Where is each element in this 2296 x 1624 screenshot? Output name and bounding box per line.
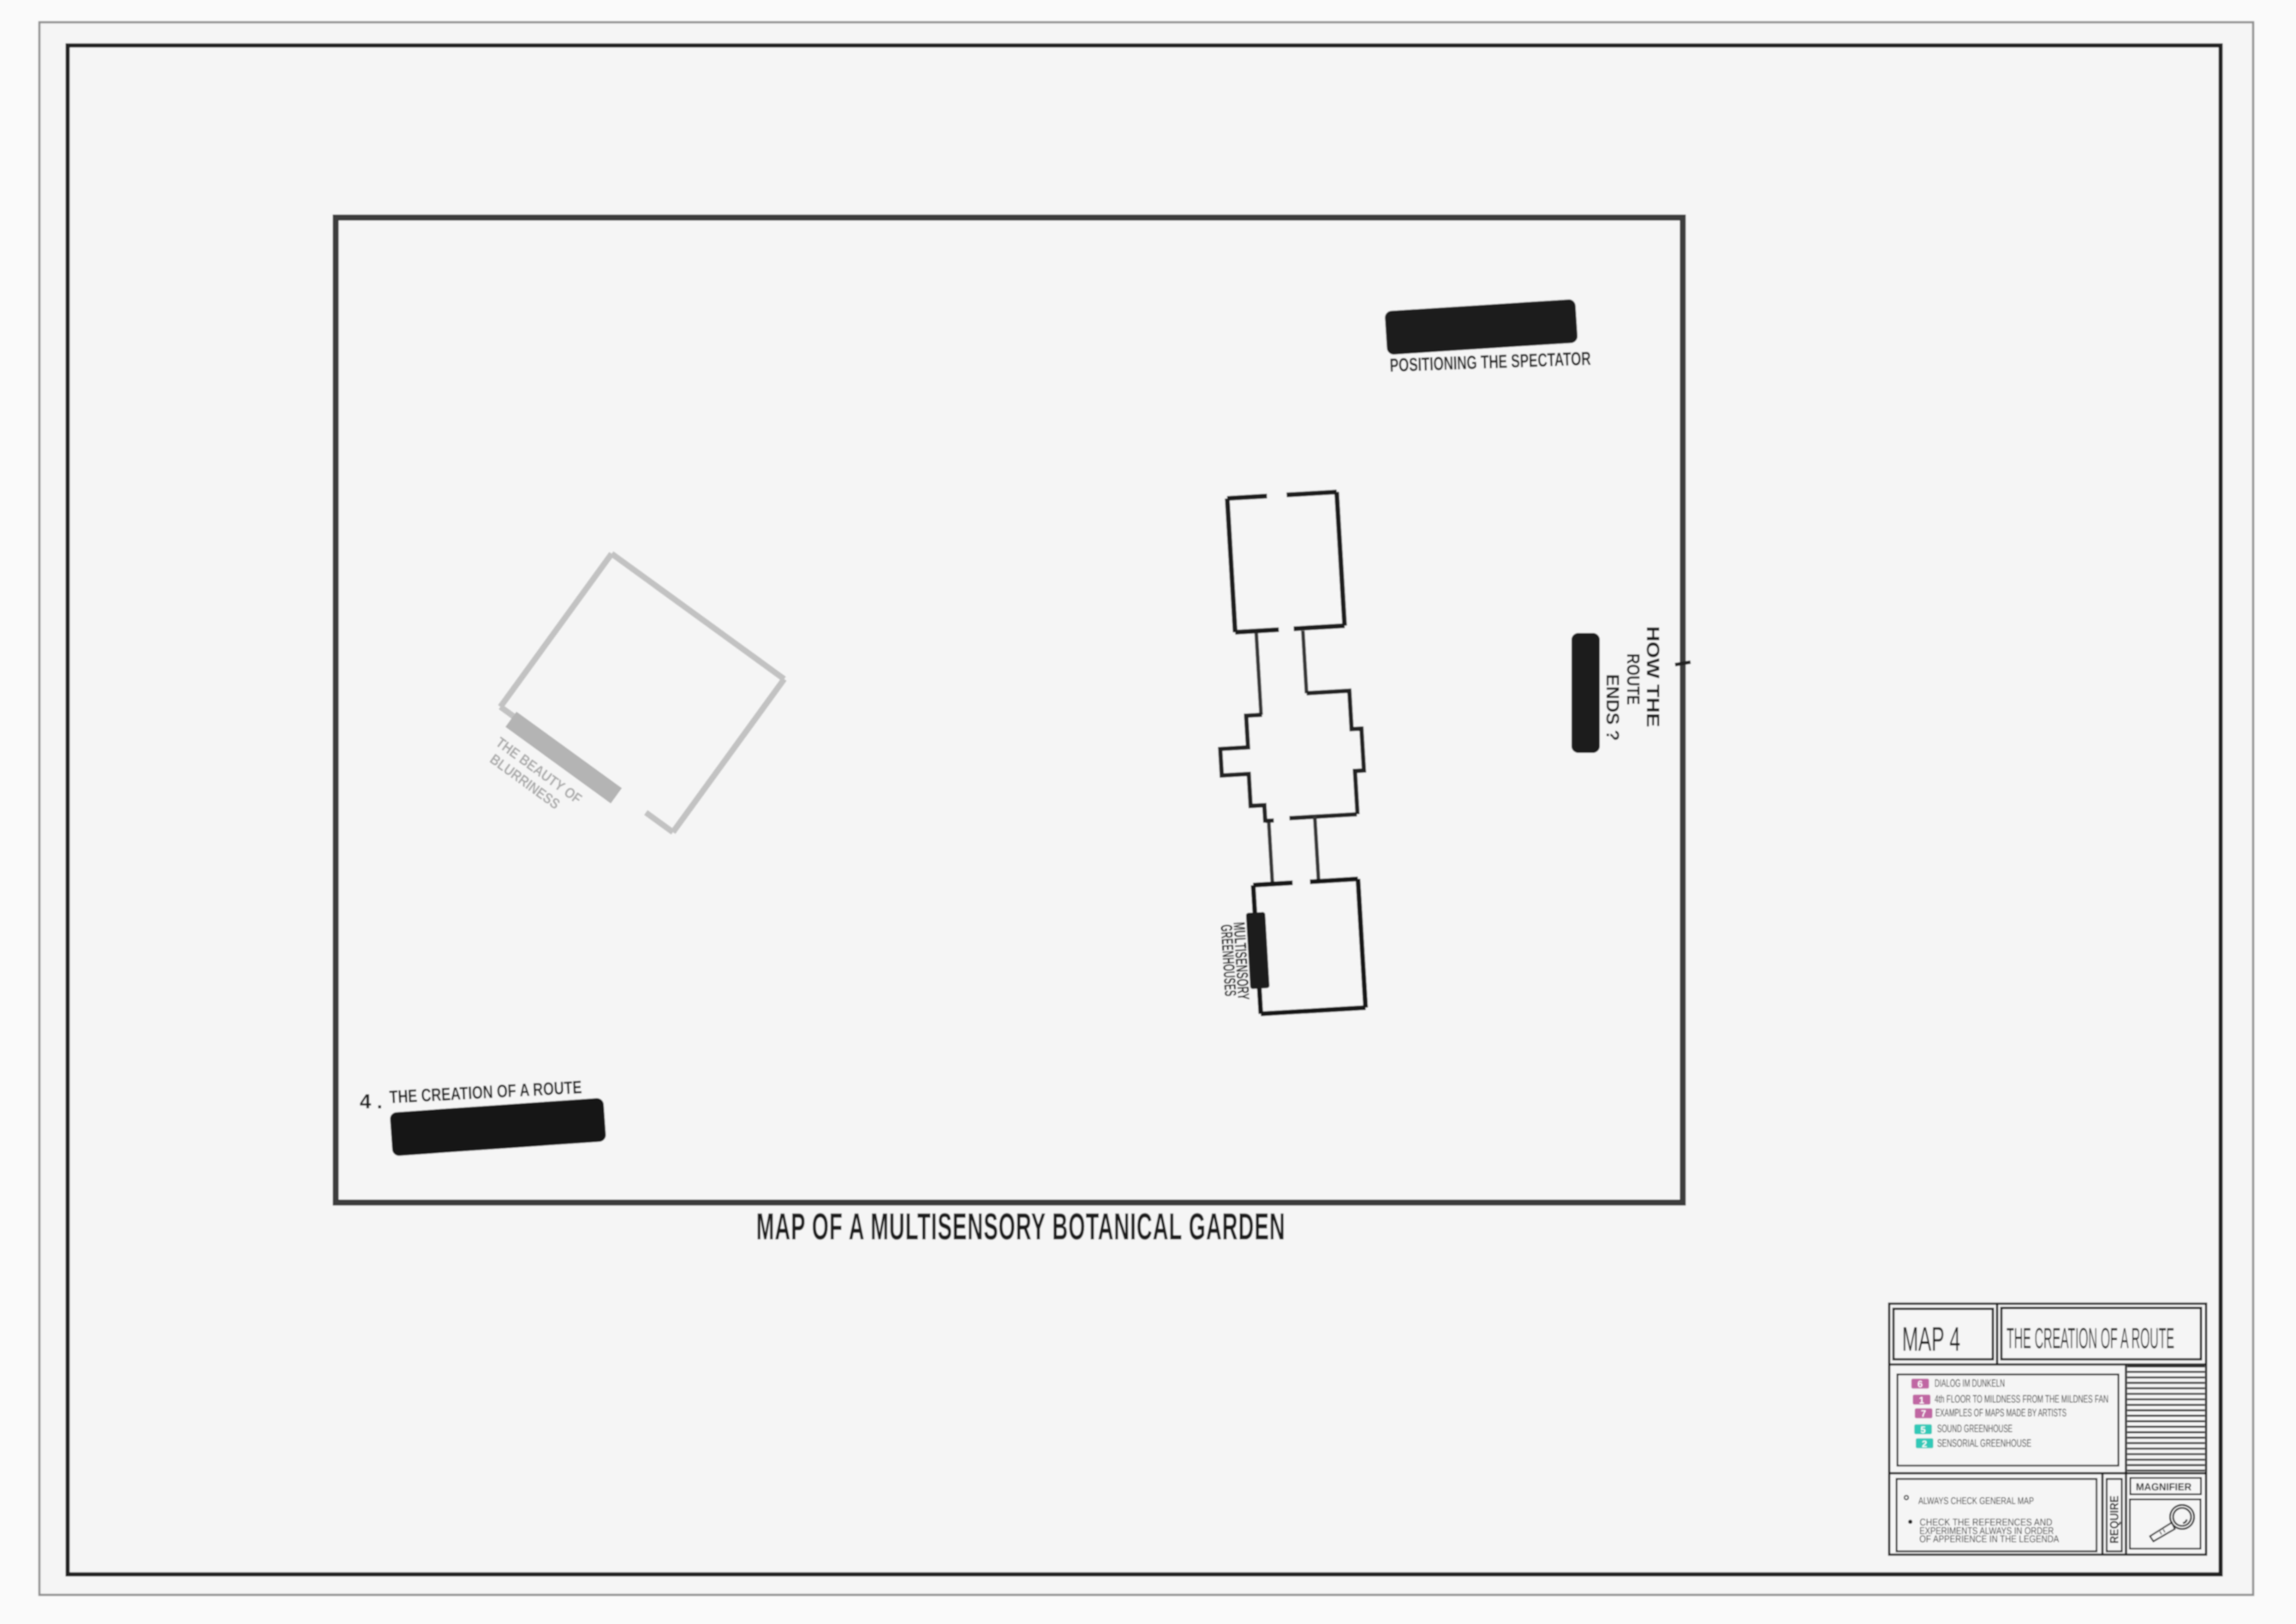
svg-text:7: 7 — [1921, 1409, 1926, 1419]
svg-text:ROUTE: ROUTE — [1623, 654, 1643, 705]
svg-text:MAP OF A MULTISENSORY BOTANICA: MAP OF A MULTISENSORY BOTANICAL GARDEN — [756, 1206, 1285, 1248]
svg-text:6: 6 — [1917, 1380, 1923, 1390]
svg-text:OF APPERIENCE IN THE LEGENDA: OF APPERIENCE IN THE LEGENDA — [1919, 1535, 2059, 1545]
svg-text:REQUIRE: REQUIRE — [2108, 1496, 2121, 1543]
svg-text:5: 5 — [1920, 1425, 1925, 1436]
svg-text:MAP 4: MAP 4 — [1902, 1321, 1960, 1358]
svg-text:4th FLOOR TO MILDNESS FROM THE: 4th FLOOR TO MILDNESS FROM THE MILDNES F… — [1935, 1394, 2108, 1406]
svg-text:HOW THE: HOW THE — [1643, 626, 1662, 727]
svg-text:1: 1 — [1919, 1395, 1924, 1406]
svg-text:MAGNIFIER: MAGNIFIER — [2136, 1481, 2192, 1493]
svg-text:ALWAYS CHECK GENERAL MAP: ALWAYS CHECK GENERAL MAP — [1918, 1496, 2034, 1507]
svg-text:SOUND GREENHOUSE: SOUND GREENHOUSE — [1937, 1423, 2013, 1435]
svg-text:ENDS ?: ENDS ? — [1602, 674, 1622, 741]
svg-text:4 .: 4 . — [360, 1090, 383, 1114]
svg-text:DIALOG IM DUNKELN: DIALOG IM DUNKELN — [1935, 1377, 2005, 1389]
svg-text:2: 2 — [1922, 1439, 1927, 1449]
svg-text:EXAMPLES OF MAPS MADE BY ARTIS: EXAMPLES OF MAPS MADE BY ARTISTS — [1935, 1407, 2066, 1419]
svg-text:SENSORIAL GREENHOUSE: SENSORIAL GREENHOUSE — [1937, 1437, 2031, 1449]
svg-text:THE CREATION OF A ROUTE: THE CREATION OF A ROUTE — [2007, 1322, 2174, 1355]
